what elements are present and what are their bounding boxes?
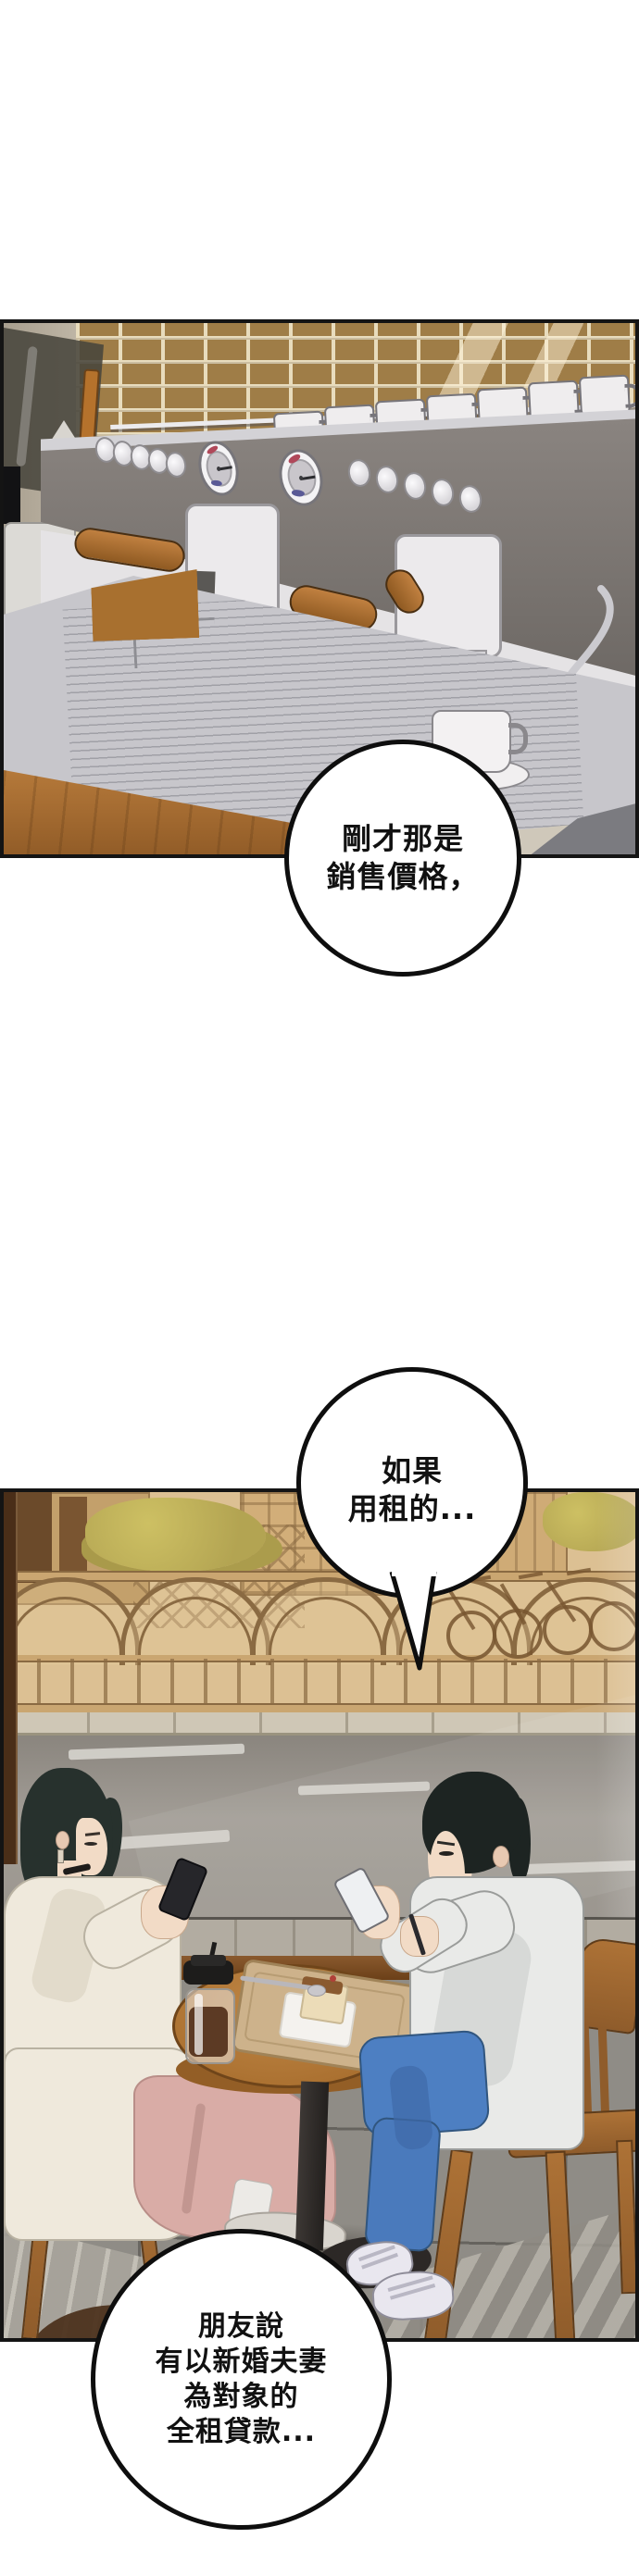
woman-earring [57,1849,64,1863]
shoelaces [358,2245,395,2261]
window-glass-sheen [596,1492,639,1918]
speech-text: 銷售價格， [326,858,479,896]
table-pedestal [295,2082,329,2251]
machine-button [429,477,457,508]
cake-garnish [330,1975,336,1982]
woman-ear [56,1831,69,1849]
fence-bars [4,1659,639,1709]
storefront-door [17,1492,52,1583]
speech-bubble-thought: 如果 用租的... [296,1367,528,1599]
speech-text: 用租的... [348,1490,476,1528]
speech-bubble-friend-loan: 朋友說 有以新婚夫妻 為對象的 全租貸款... [91,2229,392,2530]
speech-text: 全租貸款... [167,2415,316,2450]
speech-text: 如果 [382,1452,443,1490]
speech-bubble-barista: 剛才那是 銷售價格， [284,740,521,977]
speech-text: 朋友說 [198,2309,284,2345]
panel-cafe-window [0,1488,639,2342]
man-ear [493,1846,509,1868]
spoon-bowl [307,1985,326,1997]
bicycle-wheel [446,1611,496,1661]
man-eye [439,1851,454,1856]
shoelaces [388,2275,434,2292]
speech-text: 為對象的 [184,2380,299,2415]
jar-highlight [194,1994,203,2055]
tree [85,1498,266,1572]
machine-button [373,464,401,495]
storefront-window [59,1497,87,1578]
machine-button [345,457,373,489]
webtoon-page: 剛才那是 銷售價格， 如果 用租的... 朋友說 有以新婚夫妻 為對象的 全租貸… [0,0,639,2576]
speech-text: 剛才那是 [342,820,464,858]
speech-text: 有以新婚夫妻 [156,2345,328,2380]
jar-lid-top [191,1955,226,1966]
window-frame-left [4,1492,18,1864]
speech-bubble-tail [384,1572,444,1675]
machine-button [457,483,484,515]
woman-eye [84,1842,97,1846]
machine-button [401,470,429,502]
